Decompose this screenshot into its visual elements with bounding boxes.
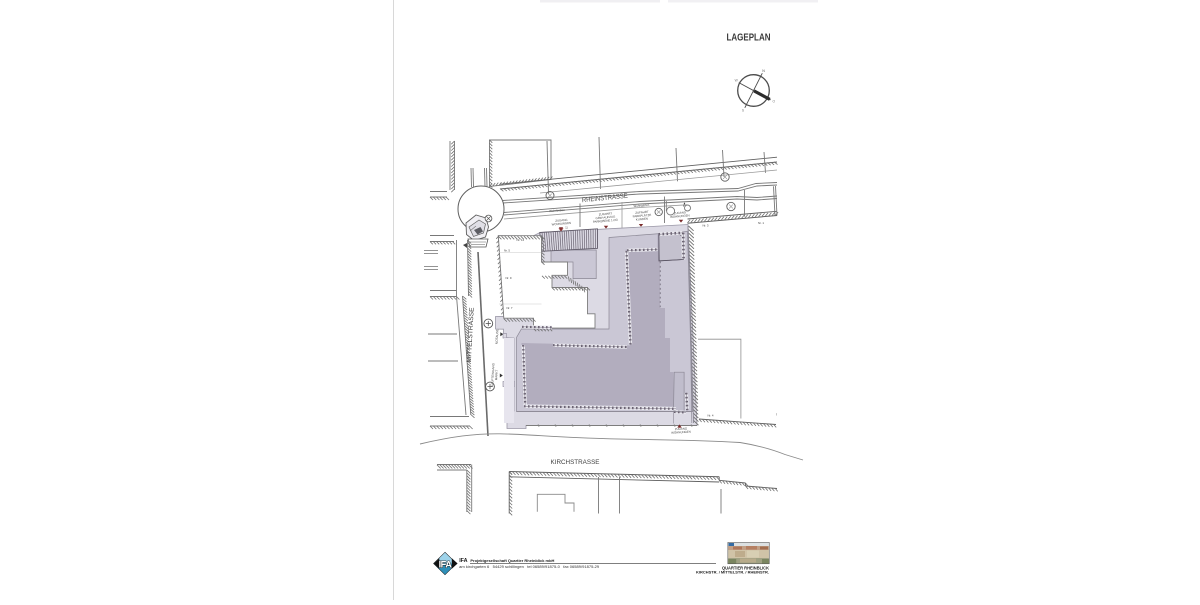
svg-text:Nr. 3: Nr. 3: [702, 223, 708, 227]
svg-text:KIRCHSTR. / MITTELSTR. / RHEIN: KIRCHSTR. / MITTELSTR. / RHEINSTR.: [696, 571, 769, 575]
svg-text:MARKT: MARKT: [494, 369, 499, 380]
svg-text:KIRCHSTRASSE: KIRCHSTRASSE: [551, 459, 601, 466]
svg-text:Nr. 7: Nr. 7: [506, 306, 512, 310]
svg-text:Nr. 11: Nr. 11: [517, 238, 525, 242]
svg-text:Projektgesellschaft Quartier R: Projektgesellschaft Quartier Rheinblick …: [470, 559, 554, 563]
svg-text:Nr. 1: Nr. 1: [758, 221, 764, 225]
svg-text:O: O: [773, 100, 776, 104]
svg-text:Nr. 4: Nr. 4: [707, 413, 713, 417]
svg-text:QUARTIER RHEINBLICK: QUARTIER RHEINBLICK: [722, 565, 769, 570]
svg-text:LAGEPLAN: LAGEPLAN: [727, 32, 771, 43]
svg-text:N: N: [762, 69, 765, 73]
svg-text:am kirchgarten 6 54429 schil: am kirchgarten 6 54429 schillingen tel 0…: [459, 565, 599, 569]
svg-text:Nr. 5: Nr. 5: [504, 249, 510, 253]
svg-text:IFA: IFA: [439, 559, 453, 569]
svg-text:Nr. 9: Nr. 9: [505, 276, 511, 280]
svg-text:IFA: IFA: [459, 558, 467, 564]
